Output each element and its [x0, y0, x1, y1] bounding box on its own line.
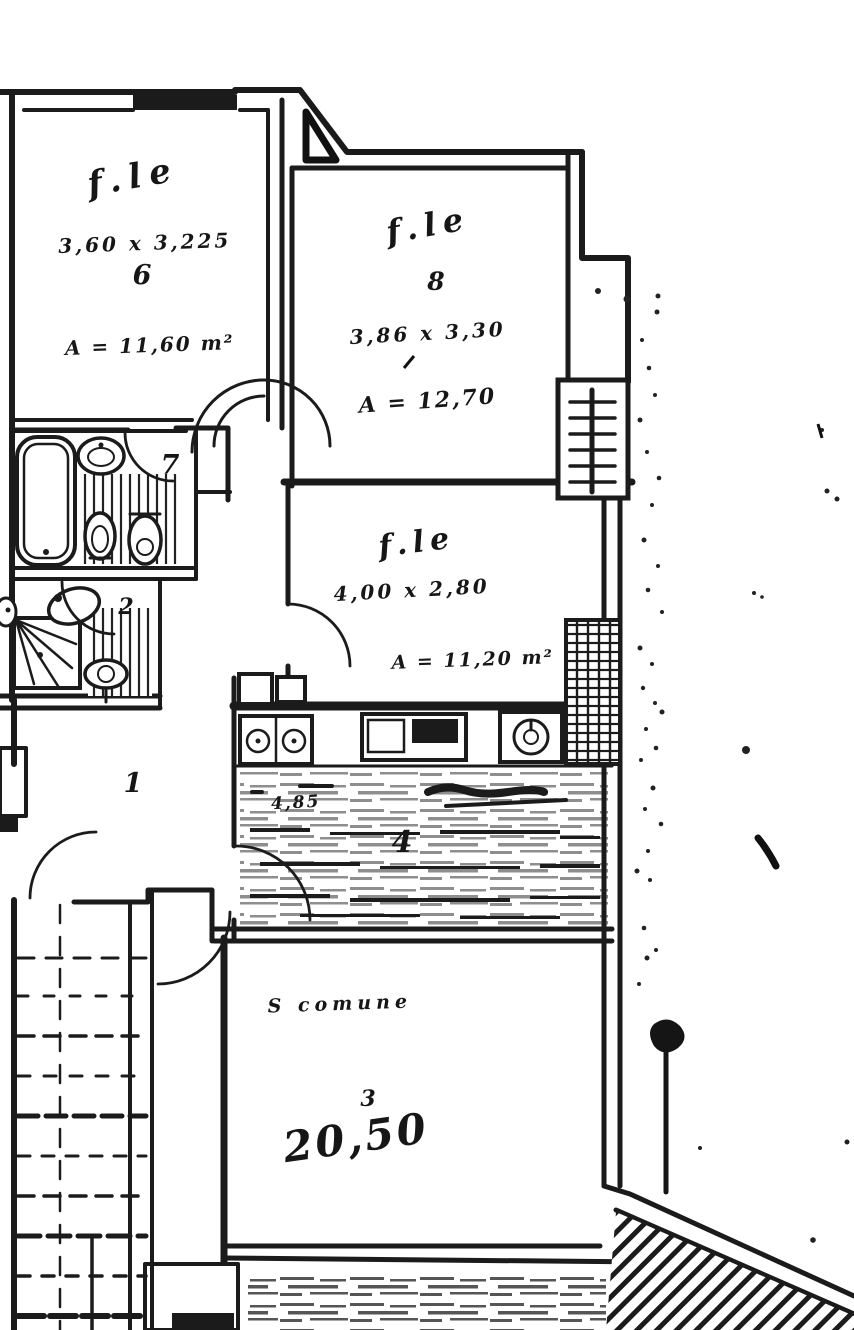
floor-plan-scan: f.le 3,60 x 3,225 6 A = 11,60 m² f.le 8 …: [0, 0, 854, 1330]
room8-script-label: f.le: [381, 199, 473, 251]
shower-icon: [14, 618, 80, 688]
room8-dims-label: 3,86 x 3,30: [349, 317, 506, 349]
room6-area-label: A = 11,60 m²: [63, 330, 235, 360]
outer-right-upper-wall: [582, 152, 628, 382]
stray-tick: [404, 356, 414, 368]
window-sill: [133, 95, 237, 110]
living-number-label: 3: [360, 1086, 375, 1112]
double-door-swing: [192, 380, 330, 452]
ink-comma-mark: [758, 838, 776, 866]
bath-main-number-label: 7: [161, 450, 180, 481]
living-door-swing: [158, 912, 230, 984]
vestibule-cabinet-a: [239, 674, 272, 704]
bidet-icon: [85, 513, 115, 559]
floor-plan-drawing: f.le 3,60 x 3,225 6 A = 11,60 m² f.le 8 …: [0, 0, 854, 1330]
terrace-diagonal-hatch: [606, 1212, 854, 1330]
room5-script-label: f.le: [375, 521, 457, 565]
bathtub-icon: [17, 437, 75, 565]
ink-tick-mark: [818, 424, 822, 438]
radiator-icon: [558, 380, 628, 498]
room6-dims-label: 3,60 x 3,225: [58, 228, 232, 258]
bath-small-number-label: 2: [117, 594, 133, 620]
bath-main-bottom-wall: [12, 568, 196, 579]
room8-area-label: A = 12,70: [356, 383, 497, 419]
kitchen-bottom-wall: [214, 929, 612, 941]
vestibule-cabinet-b: [277, 677, 305, 702]
bath-small-bottom-wall: [0, 696, 160, 708]
kitchen-sink-icon: [240, 716, 312, 764]
kitchen-dim-label: 4,85: [271, 792, 321, 815]
room5-dims-label: 4,00 x 2,80: [333, 574, 490, 606]
room6-number-label: 6: [133, 260, 152, 291]
room5-area-label: A = 11,20 m²: [389, 646, 554, 674]
hall-number-label: 1: [124, 768, 143, 799]
living-bottom-wall: [224, 1246, 648, 1262]
room6-script-label: f.le: [82, 149, 181, 205]
outer-left-wall: [12, 92, 14, 1330]
hall-door-swing: [30, 832, 96, 898]
balcony-left-block: [172, 1313, 234, 1328]
washbasin-icon: [78, 438, 124, 474]
bath-main-right-wall: [196, 430, 230, 579]
outer-top-corner-wall: [235, 90, 582, 152]
hall-step-wall: [74, 890, 212, 941]
cooktop-icon: [362, 714, 466, 760]
stair-strip: [18, 892, 152, 1330]
left-edge-block: [0, 818, 18, 832]
balcony-hatch: [248, 1212, 854, 1330]
edge-basin-icon: [0, 598, 16, 626]
toilet-icon: [129, 514, 161, 564]
window-grid-icon: [566, 620, 620, 764]
kitchen-number-label: 4: [392, 825, 413, 860]
room8-number-label: 8: [426, 267, 444, 296]
water-heater-icon: [500, 712, 562, 762]
room-middle-door-swing: [288, 604, 350, 666]
living-area-label: 20,50: [279, 1103, 432, 1172]
living-label: S comune: [267, 990, 412, 1017]
